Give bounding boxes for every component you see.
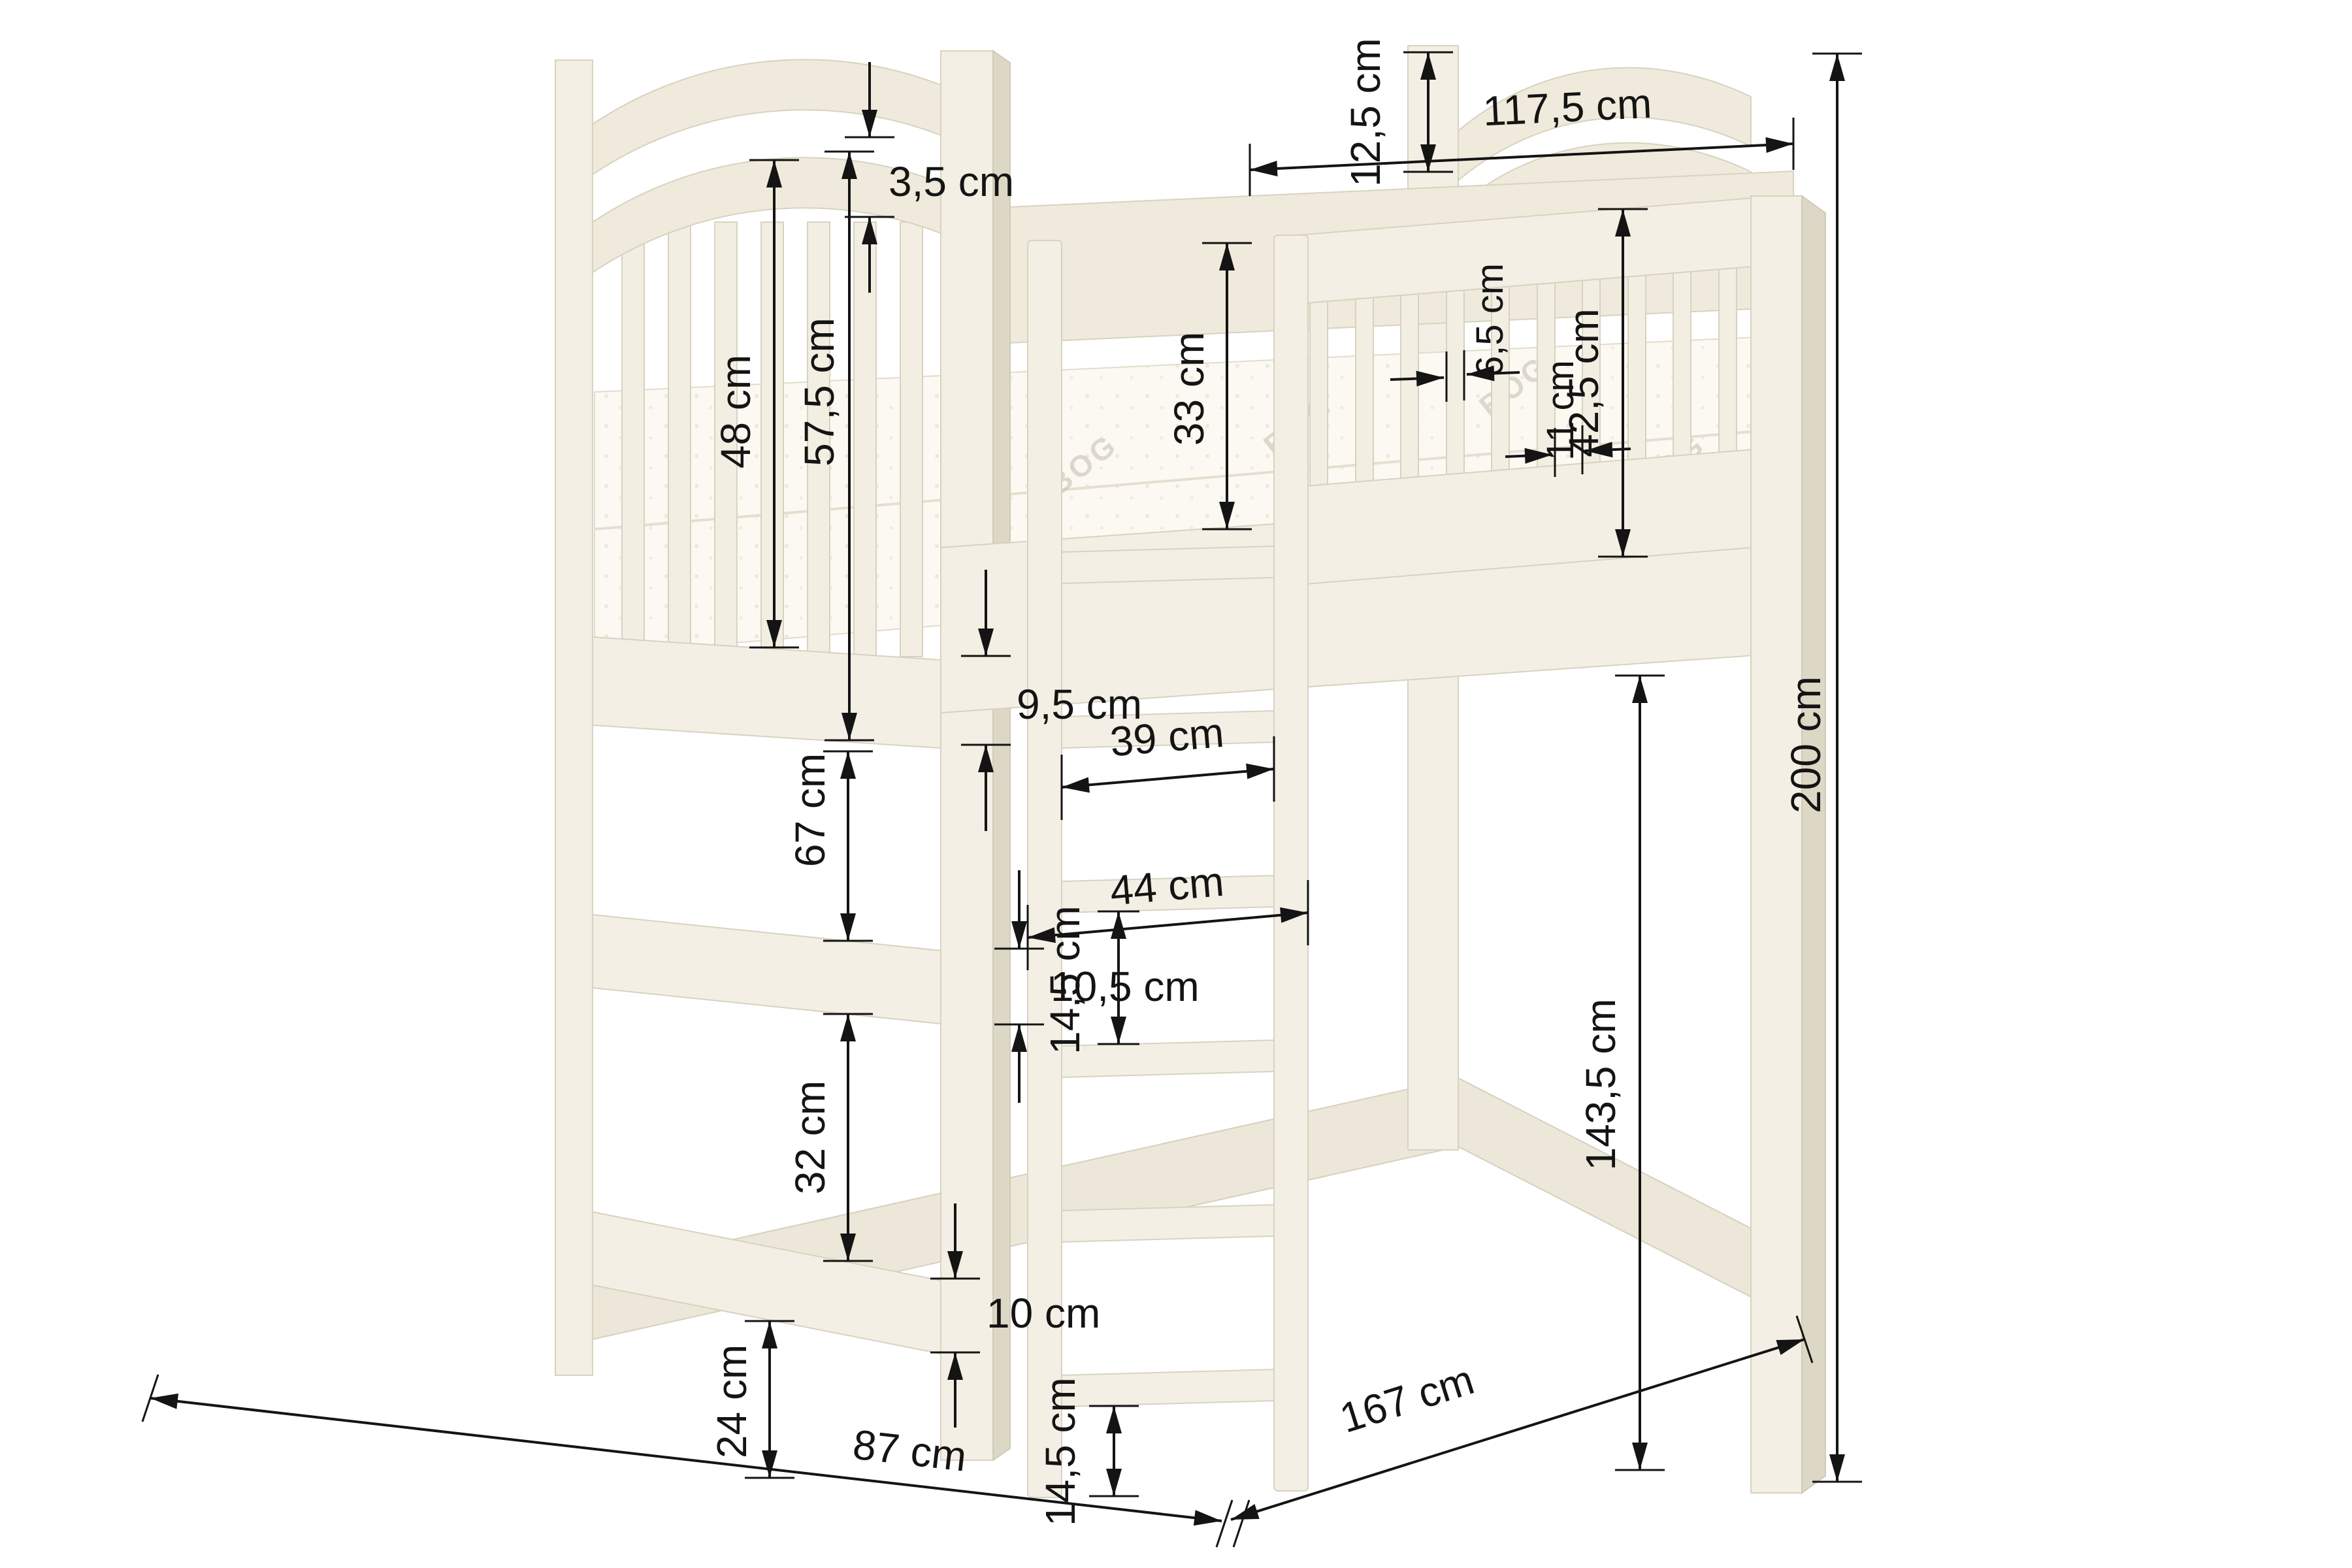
loft-bed-dimension-diagram: BOG BOG BOG BOG bbox=[0, 0, 2352, 1568]
headboard-front-post-side bbox=[993, 51, 1010, 1460]
dim-label: 24 cm bbox=[708, 1345, 755, 1458]
dim-label: 14,5 cm bbox=[1041, 906, 1088, 1054]
dim-label: 42,5 cm bbox=[1560, 308, 1607, 457]
ladder-right-stile bbox=[1274, 235, 1308, 1491]
guardrail-slat bbox=[1401, 294, 1418, 478]
guardrail-slat bbox=[1356, 297, 1373, 482]
dim-label: 10 cm bbox=[987, 1290, 1100, 1337]
headboard-slat bbox=[622, 222, 644, 657]
dim-label: 143,5 cm bbox=[1577, 998, 1624, 1170]
front-right-leg bbox=[1751, 196, 1825, 1493]
guardrail-slat bbox=[1673, 272, 1691, 456]
headboard bbox=[555, 51, 1010, 1460]
dim-label: 117,5 cm bbox=[1482, 80, 1653, 135]
dim-label: 200 cm bbox=[1782, 676, 1829, 813]
dim-label: 57,5 cm bbox=[796, 318, 843, 466]
dim-underbed-height: 143,5 cm bbox=[1577, 676, 1665, 1470]
headboard-back-post bbox=[555, 60, 593, 1375]
dim-label: 3,5 cm bbox=[889, 158, 1014, 205]
guardrail-slat bbox=[1628, 275, 1646, 459]
dim-vertex-break bbox=[1217, 1500, 1249, 1547]
guardrail-slat bbox=[1446, 290, 1464, 474]
dim-label: 67 cm bbox=[787, 753, 834, 867]
dim-label: 32 cm bbox=[787, 1081, 834, 1194]
headboard-bottom-rail bbox=[593, 637, 941, 748]
headboard-arch-upper bbox=[593, 59, 941, 174]
front-right-leg-face bbox=[1751, 196, 1802, 1493]
headboard-mid-rail bbox=[593, 915, 941, 1024]
front-right-leg-side bbox=[1802, 196, 1825, 1493]
ladder-rung bbox=[1062, 1205, 1274, 1242]
ladder-rung bbox=[1062, 1040, 1274, 1077]
ladder-rung bbox=[1062, 546, 1274, 583]
dim-label: 39 cm bbox=[1108, 709, 1226, 766]
headboard-slat bbox=[854, 222, 876, 657]
ladder-rung bbox=[1062, 1369, 1274, 1407]
guardrail-slat bbox=[1719, 268, 1737, 452]
dim-label: 44 cm bbox=[1108, 858, 1226, 915]
dim-total-length: 167 cm bbox=[1231, 1316, 1812, 1520]
headboard-slat bbox=[668, 222, 691, 657]
dim-label: 6,5 cm bbox=[1469, 263, 1511, 377]
dim-label: 48 cm bbox=[712, 355, 759, 468]
guardrail-slat bbox=[1310, 301, 1328, 485]
dim-floor-clearance: 24 cm bbox=[708, 1321, 794, 1478]
dim-label: 33 cm bbox=[1166, 332, 1213, 446]
headboard-slat bbox=[761, 222, 783, 657]
dim-label: 167 cm bbox=[1334, 1356, 1479, 1442]
dim-upper-rail-gap: 67 cm bbox=[787, 751, 873, 941]
headboard-slat bbox=[900, 222, 923, 657]
